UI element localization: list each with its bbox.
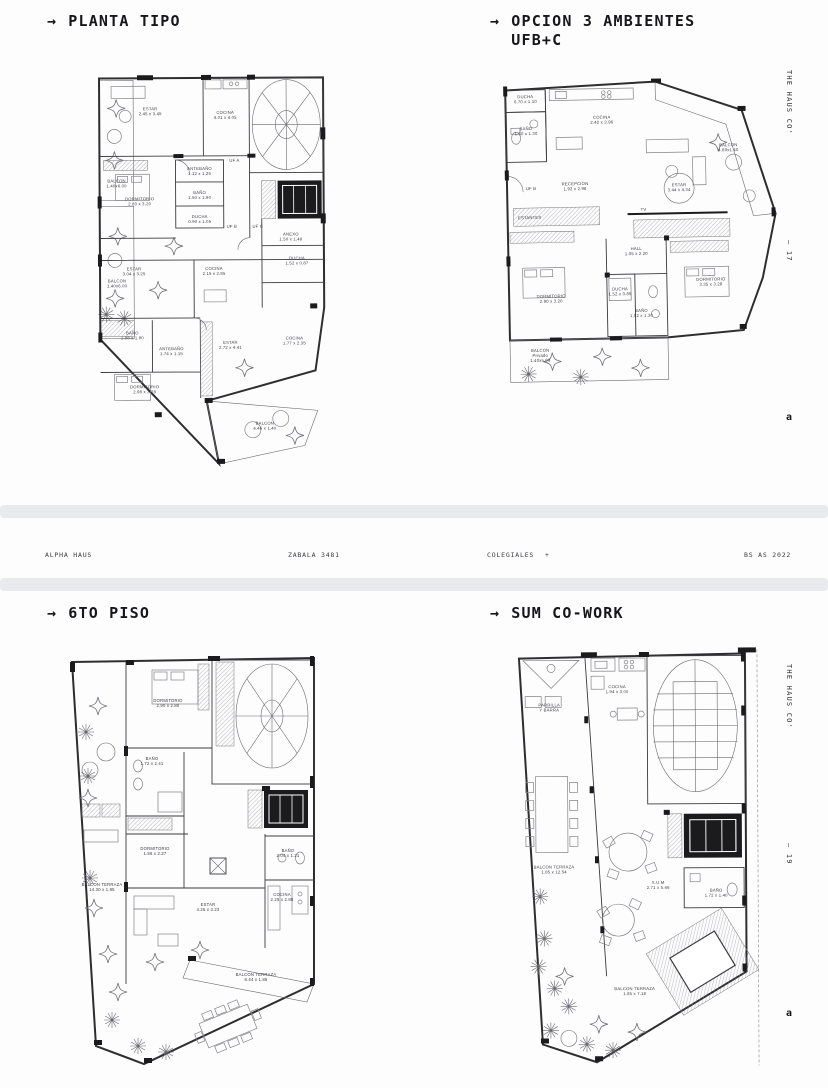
elevator xyxy=(668,813,742,857)
svg-text:ANTEBAÑO1.12 x 1.25: ANTEBAÑO1.12 x 1.25 xyxy=(187,166,212,176)
svg-text:DORMITORIO2.80 x 3.20: DORMITORIO2.80 x 3.20 xyxy=(125,196,155,206)
svg-text:BALCON1.40x6.00: BALCON1.40x6.00 xyxy=(107,278,128,288)
svg-text:UF A: UF A xyxy=(229,158,239,163)
sheet-edge-bottom xyxy=(0,578,828,591)
svg-text:DORMITORIO3.35 x 3.28: DORMITORIO3.35 x 3.28 xyxy=(696,276,726,287)
svg-text:ESTAR3.44 x 4.34: ESTAR3.44 x 4.34 xyxy=(668,182,692,192)
elevator xyxy=(262,180,322,218)
floor-plan-opcion-3-ambientes: DUCHA0.70 x 1.10BAÑO1.60 x 1.30COCINA2.4… xyxy=(485,75,787,397)
svg-text:DUCHA1.52 x 0.87: DUCHA1.52 x 0.87 xyxy=(285,255,308,265)
svg-text:ESTAR4.25 x 3.23: ESTAR4.25 x 3.23 xyxy=(197,902,220,912)
svg-text:BALCON4.46 x 1.40: BALCON4.46 x 1.40 xyxy=(253,421,276,431)
brand-vertical-top: THE HAUS CO' xyxy=(785,70,793,135)
svg-text:COCINA4.01 x 4.05: COCINA4.01 x 4.05 xyxy=(214,110,237,120)
footer-project-name: ALPHA HAUS xyxy=(45,551,92,559)
plan-title-line1: 6TO PISO xyxy=(68,604,150,623)
svg-text:DUCHA1.52 x 0.85: DUCHA1.52 x 0.85 xyxy=(609,286,633,296)
plan-title-6to-piso: → 6TO PISO xyxy=(47,604,150,623)
svg-text:DORMITORIO2.90 x 3.20: DORMITORIO2.90 x 3.20 xyxy=(537,293,567,304)
brand-vertical-bottom: THE HAUS CO' xyxy=(785,664,793,729)
svg-text:BALCON TERRAZA8.44 x 1.85: BALCON TERRAZA8.44 x 1.85 xyxy=(236,972,277,982)
svg-text:COCINA2.42 x 3.96: COCINA2.42 x 3.96 xyxy=(590,114,614,124)
room-labels: DORMITORIO2.90 x 2.80BAÑO1.72 x 2.41DORM… xyxy=(82,698,300,982)
arrow-right-icon: → xyxy=(490,12,500,50)
plan-title-planta-tipo: → PLANTA TIPO xyxy=(47,12,181,31)
svg-text:BAÑO1.52 x 1.30: BAÑO1.52 x 1.30 xyxy=(630,308,654,318)
svg-text:PARRILLAY BARRA: PARRILLAY BARRA xyxy=(538,702,560,712)
svg-text:COCINA2.25 x 2.88: COCINA2.25 x 2.88 xyxy=(271,892,294,902)
elevator xyxy=(248,790,308,828)
svg-text:ANEXO1.50 x 1.48: ANEXO1.50 x 1.48 xyxy=(279,231,302,241)
svg-text:BAÑO1.72 x 1.40: BAÑO1.72 x 1.40 xyxy=(705,888,728,898)
floor-plan-planta-tipo: BALCON1.40x6.00BALCON1.40x6.00ESTAR2.45 … xyxy=(53,67,337,466)
svg-text:COCINA1.77 x 2.35: COCINA1.77 x 2.35 xyxy=(283,335,306,345)
circular-stair xyxy=(212,660,314,784)
floor-plan-6to-piso: DORMITORIO2.90 x 2.80BAÑO1.72 x 2.41DORM… xyxy=(60,648,342,1078)
svg-text:COCINA1.94 x 3.00: COCINA1.94 x 3.00 xyxy=(606,684,629,694)
arrow-right-icon: → xyxy=(47,604,57,623)
svg-text:ANTEBAÑO1.74 x 1.15: ANTEBAÑO1.74 x 1.15 xyxy=(159,346,184,356)
svg-text:DUCHA0.70 x 1.10: DUCHA0.70 x 1.10 xyxy=(514,94,538,104)
alpha-logo-top: a xyxy=(786,412,792,423)
svg-text:ESTANTES: ESTANTES xyxy=(518,215,541,220)
alpha-logo-bottom: a xyxy=(786,1008,792,1019)
circular-stair xyxy=(647,655,746,804)
svg-text:ESTAR3.04 x 3.25: ESTAR3.04 x 3.25 xyxy=(123,266,146,276)
svg-text:ESTAR2.45 x 3.45: ESTAR2.45 x 3.45 xyxy=(139,106,162,116)
footer-city-year: BS AS 2022 xyxy=(744,551,791,559)
svg-text:UF B: UF B xyxy=(227,224,237,229)
arrow-right-icon: → xyxy=(47,12,57,31)
svg-text:BALCON TERRAZA1.85 x 12.54: BALCON TERRAZA1.85 x 12.54 xyxy=(534,864,575,874)
svg-text:DORMITORIO1.86 x 2.27: DORMITORIO1.86 x 2.27 xyxy=(140,846,170,856)
svg-text:S.U.M2.71 x 5.46: S.U.M2.71 x 5.46 xyxy=(647,880,670,890)
svg-text:TV: TV xyxy=(641,207,647,212)
svg-text:UF C: UF C xyxy=(252,224,263,229)
circular-stair xyxy=(249,77,323,172)
svg-text:DUCHA0.90 x 1.05: DUCHA0.90 x 1.05 xyxy=(188,214,211,224)
svg-text:BALCON1.40x6.00: BALCON1.40x6.00 xyxy=(106,178,127,188)
page-number-top: — 17 xyxy=(785,240,793,262)
plan-title-opcion-3-ambientes: → OPCION 3 AMBIENTES UFB+C xyxy=(490,12,695,50)
terrace-table xyxy=(526,776,578,852)
sheet-edge-top xyxy=(0,505,828,518)
jacuzzi-deck xyxy=(646,908,759,1015)
svg-text:HALL1.05 x 2.20: HALL1.05 x 2.20 xyxy=(625,246,649,256)
floor-plan-sum-co-work: PARRILLAY BARRACOCINA1.94 x 3.00BALCON T… xyxy=(505,645,779,1070)
svg-text:BAÑO1.72 x 2.41: BAÑO1.72 x 2.41 xyxy=(141,756,164,766)
footer-neighborhood: COLEGIALES xyxy=(487,551,534,559)
svg-text:UF B: UF B xyxy=(526,186,536,191)
plan-title-line1: PLANTA TIPO xyxy=(68,12,181,31)
plan-title-line2: UFB+C xyxy=(511,31,695,50)
footer-plus-icon: + xyxy=(545,551,550,559)
page-number-bottom: — 19 xyxy=(785,843,793,865)
svg-text:BAÑO2.04 x 1.21: BAÑO2.04 x 1.21 xyxy=(277,848,300,858)
parrilla-grill xyxy=(523,660,579,707)
plan-title-sum-co-work: → SUM CO-WORK xyxy=(490,604,624,623)
svg-text:BALCON TERRAZA14.30 x 1.85: BALCON TERRAZA14.30 x 1.85 xyxy=(82,882,123,892)
round-table xyxy=(603,830,658,879)
svg-text:ESTAR2.72 x 4.41: ESTAR2.72 x 4.41 xyxy=(219,340,242,350)
plan-title-line1: SUM CO-WORK xyxy=(511,604,624,623)
svg-text:DORMITORIO2.98 x 3.28: DORMITORIO2.98 x 3.28 xyxy=(130,384,160,394)
svg-text:RECEPCION1.92 x 2.96: RECEPCION1.92 x 2.96 xyxy=(562,181,589,192)
dining-table xyxy=(189,994,268,1058)
footer-address: ZABALA 3481 xyxy=(288,551,340,559)
svg-text:BAÑO1.50 x 1.90: BAÑO1.50 x 1.90 xyxy=(188,190,211,200)
svg-text:BALCON TERRAZA1.85 x 7.18: BALCON TERRAZA1.85 x 7.18 xyxy=(614,986,655,996)
svg-text:BALCON4.80x1.40: BALCON4.80x1.40 xyxy=(718,142,739,152)
svg-text:BALCONPrivado1.40x5.09: BALCONPrivado1.40x5.09 xyxy=(530,348,551,363)
plan-title-line1: OPCION 3 AMBIENTES xyxy=(511,12,695,31)
svg-text:BAÑO1.60 x 1.30: BAÑO1.60 x 1.30 xyxy=(514,126,538,136)
arrow-right-icon: → xyxy=(490,604,500,623)
svg-text:DORMITORIO2.90 x 2.80: DORMITORIO2.90 x 2.80 xyxy=(153,698,183,708)
svg-text:COCINA2.15 x 2.85: COCINA2.15 x 2.85 xyxy=(203,266,226,276)
